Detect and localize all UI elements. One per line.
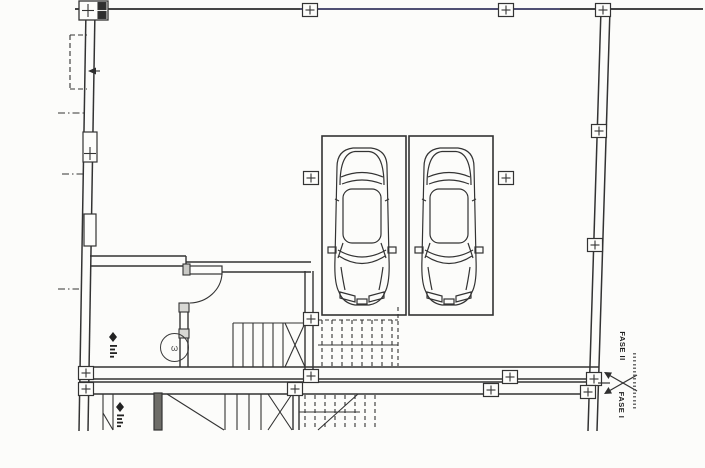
stairs-lower xyxy=(103,394,292,430)
column-markers xyxy=(79,1,611,399)
column-marker xyxy=(304,313,319,326)
column-marker xyxy=(581,386,596,399)
car-top-view-left xyxy=(328,148,396,305)
level-marker-icon xyxy=(109,332,117,358)
column-marker xyxy=(499,4,514,17)
corner-column-marker xyxy=(79,1,108,20)
stairs-main xyxy=(233,323,305,367)
column-marker xyxy=(304,370,319,383)
direction-arrow-icon xyxy=(88,68,100,75)
parking-space-left xyxy=(322,136,406,315)
left-wall-empty-marker xyxy=(84,214,96,246)
column-marker xyxy=(588,239,603,252)
left-wall-column-marker xyxy=(83,132,97,162)
column-marker xyxy=(503,371,518,384)
column-marker xyxy=(304,172,319,185)
datum-line-stubs xyxy=(58,113,85,289)
floor-plan-sheet: FASE II FASE I ω xyxy=(0,0,705,468)
phase-label-fase-1: FASE I xyxy=(616,383,626,427)
stairs-upper-dashed xyxy=(318,307,398,366)
column-marker xyxy=(592,125,607,138)
plan-linework xyxy=(0,0,705,468)
bottom-walls xyxy=(78,367,599,394)
column-marker xyxy=(288,383,303,396)
car-top-view-right xyxy=(415,148,483,305)
floor-drain-symbol: ω xyxy=(160,333,189,362)
parking-space-right xyxy=(409,136,493,315)
door-swing xyxy=(183,264,222,303)
phase-label-fase-2: FASE II xyxy=(617,324,627,368)
stairs-lower-dashed xyxy=(299,394,375,430)
column-marker xyxy=(499,172,514,185)
parking-spaces xyxy=(322,136,493,315)
level-marker-icon xyxy=(116,402,124,427)
column-marker xyxy=(596,4,611,17)
column-marker xyxy=(303,4,318,17)
interior-walls xyxy=(90,256,313,430)
phase-divider-caption xyxy=(633,353,636,409)
floor-drain-glyph: ω xyxy=(171,343,178,353)
column-marker xyxy=(484,384,499,397)
column-marker xyxy=(79,383,94,396)
column-marker xyxy=(79,367,94,380)
